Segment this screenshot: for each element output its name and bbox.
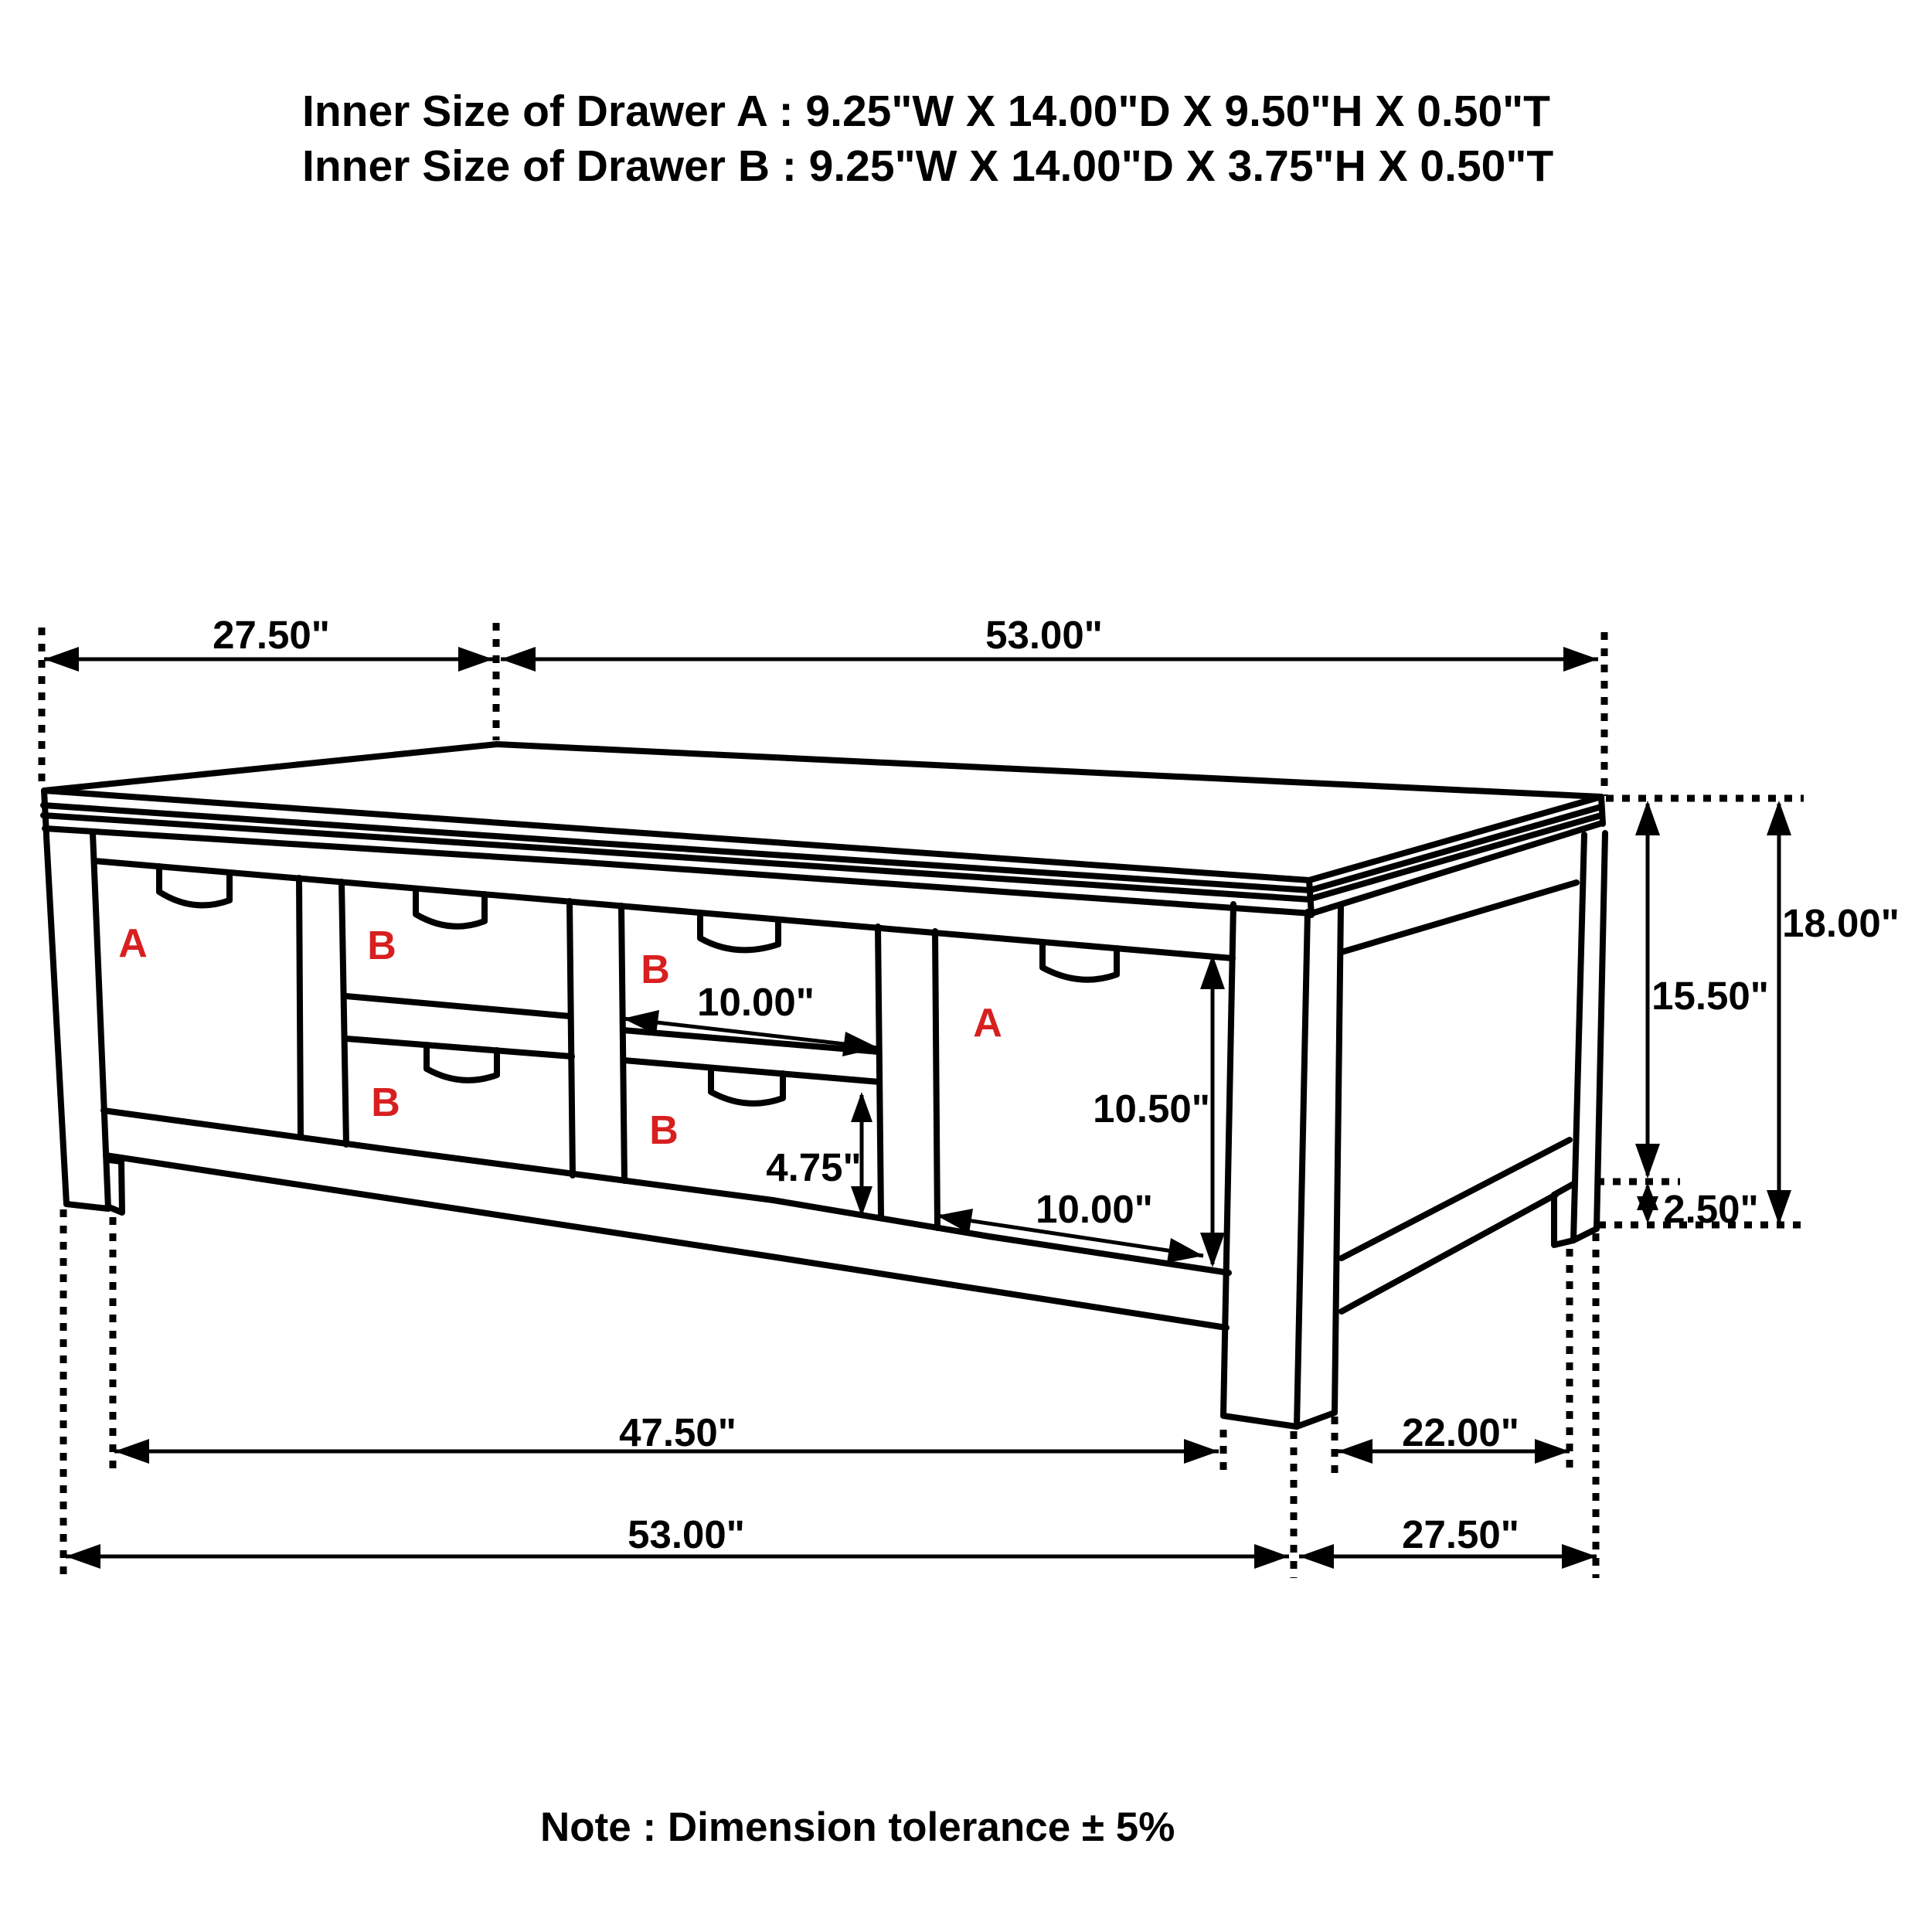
svg-text:Inner Size of Drawer A : 9.25": Inner Size of Drawer A : 9.25"W X 14.00"… bbox=[302, 87, 1550, 136]
svg-text:Note : Dimension tolerance ± 5: Note : Dimension tolerance ± 5% bbox=[540, 1804, 1175, 1850]
svg-text:47.50": 47.50" bbox=[619, 1410, 736, 1454]
svg-text:Inner Size of Drawer B : 9.25": Inner Size of Drawer B : 9.25"W X 14.00"… bbox=[302, 141, 1553, 191]
svg-text:10.00": 10.00" bbox=[697, 980, 815, 1024]
svg-text:B: B bbox=[371, 1080, 400, 1125]
svg-text:B: B bbox=[367, 923, 396, 968]
svg-text:22.00": 22.00" bbox=[1402, 1410, 1519, 1454]
svg-text:18.00": 18.00" bbox=[1782, 901, 1900, 945]
svg-text:10.00": 10.00" bbox=[1036, 1187, 1153, 1231]
svg-text:10.50": 10.50" bbox=[1093, 1087, 1210, 1131]
svg-text:27.50": 27.50" bbox=[1402, 1512, 1519, 1556]
svg-text:27.50": 27.50" bbox=[213, 613, 330, 657]
svg-text:A: A bbox=[118, 921, 148, 966]
svg-text:15.50": 15.50" bbox=[1651, 974, 1769, 1018]
svg-text:53.00": 53.00" bbox=[628, 1512, 745, 1556]
svg-text:2.50": 2.50" bbox=[1663, 1187, 1758, 1231]
svg-text:B: B bbox=[641, 947, 670, 992]
svg-text:4.75": 4.75" bbox=[766, 1145, 861, 1189]
svg-text:53.00": 53.00" bbox=[985, 613, 1103, 657]
svg-text:B: B bbox=[649, 1108, 679, 1153]
svg-text:A: A bbox=[973, 1001, 1002, 1046]
